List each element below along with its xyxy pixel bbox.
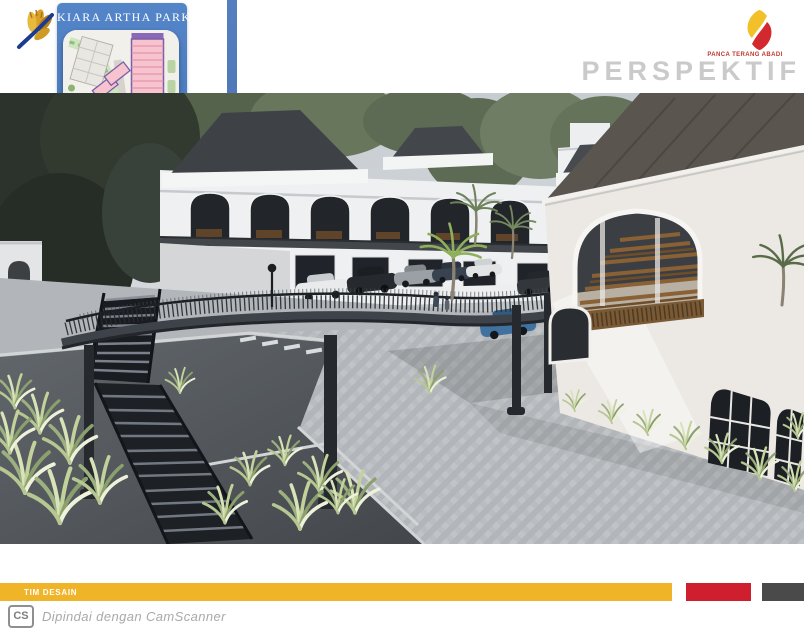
project-title: KIARA ARTHA PARK	[57, 10, 187, 25]
footer-red-block	[686, 583, 751, 601]
footer-label: TIM DESAIN	[24, 588, 77, 597]
footer-yellow-bar: TIM DESAIN	[0, 583, 672, 601]
kiara-artha-leaf-logo	[12, 6, 58, 52]
architectural-perspective-render	[0, 93, 804, 544]
page-title: PERSPEKTIF	[581, 56, 801, 87]
camscanner-icon: CS	[8, 605, 34, 628]
footer-dark-block	[762, 583, 804, 601]
camscanner-attribution: CS Dipindai dengan CamScanner	[8, 604, 226, 628]
panca-terang-abadi-logo	[738, 8, 780, 52]
lower-arch	[550, 307, 590, 363]
camscanner-text: Dipindai dengan CamScanner	[42, 609, 226, 624]
